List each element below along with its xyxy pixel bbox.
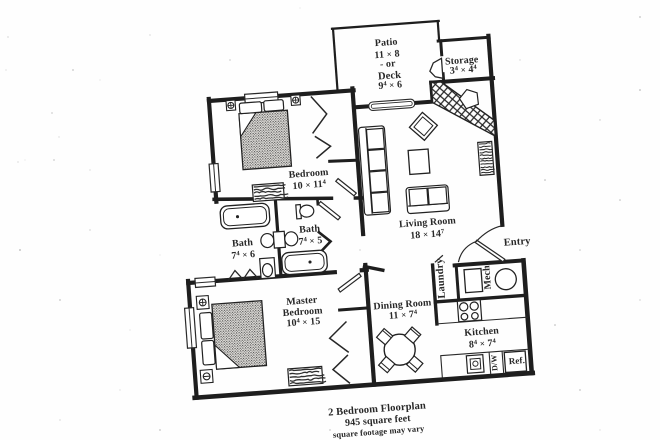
svg-text:Bath: Bath: [299, 223, 321, 236]
svg-text:- or: - or: [380, 58, 397, 70]
svg-text:Bath: Bath: [232, 237, 254, 250]
svg-text:Ref.: Ref.: [508, 355, 525, 366]
svg-text:Entry: Entry: [503, 236, 531, 249]
svg-text:Mech.: Mech.: [481, 262, 494, 290]
svg-text:74 × 6: 74 × 6: [231, 249, 256, 262]
svg-text:Patio: Patio: [374, 37, 397, 50]
svg-text:94 × 6: 94 × 6: [378, 79, 403, 92]
svg-text:D/W: D/W: [489, 354, 499, 371]
svg-text:74 × 5: 74 × 5: [298, 235, 323, 248]
